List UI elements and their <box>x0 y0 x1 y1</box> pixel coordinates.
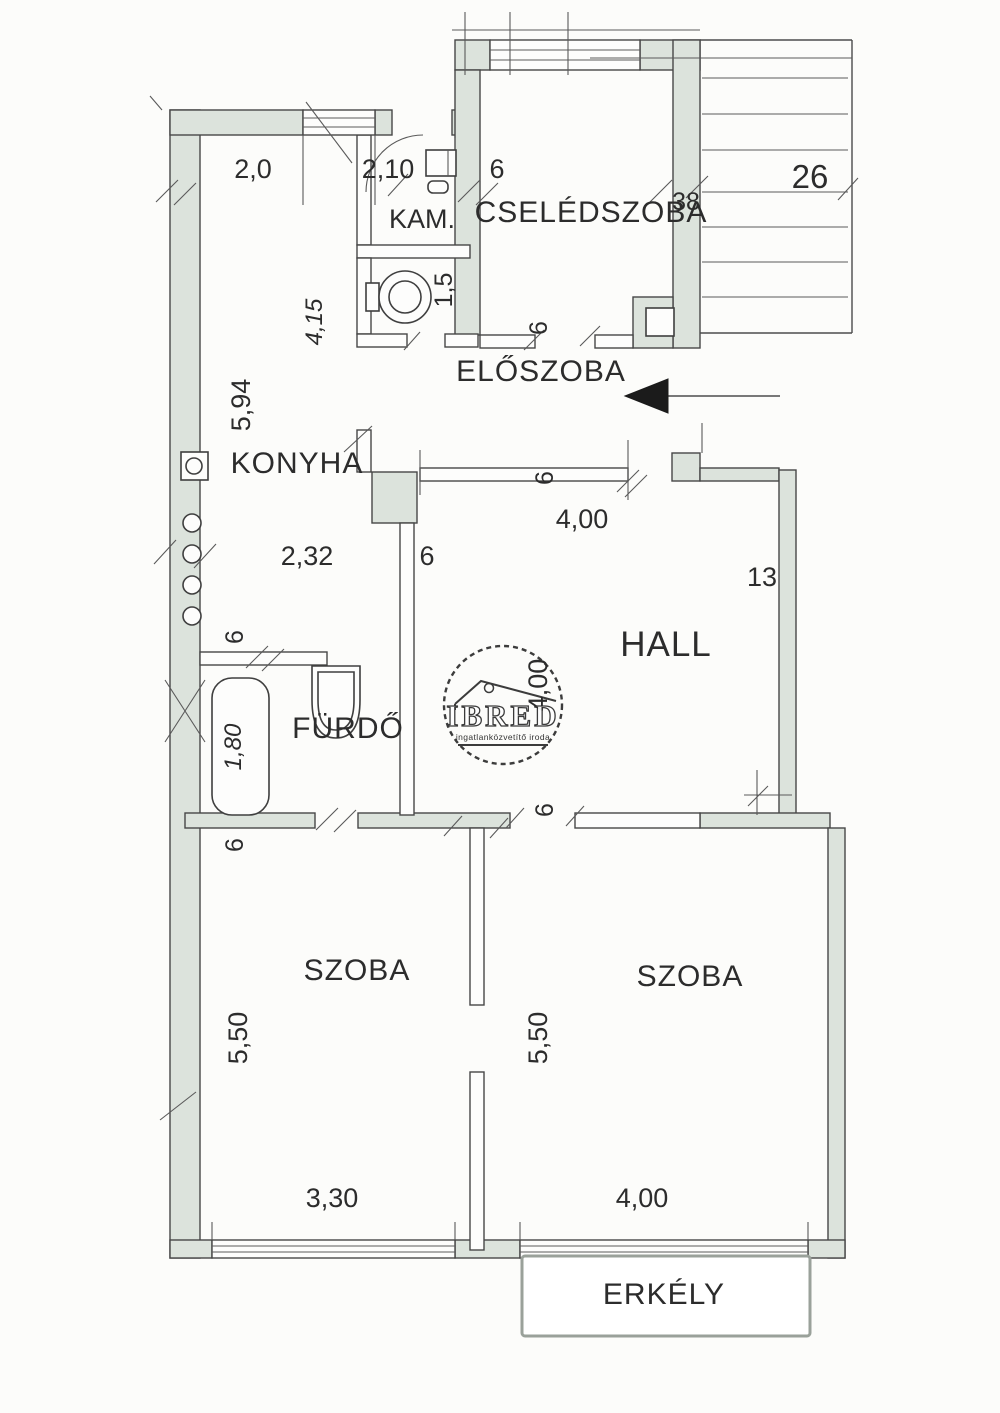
dim-4-15: 4,15 <box>301 298 328 345</box>
room-labels: KAM. CSELÉDSZOBA ELŐSZOBA KONYHA HALL FÜ… <box>231 196 744 1311</box>
room-label-kam: KAM. <box>389 204 455 234</box>
window-szoba-left-bottom <box>212 1240 455 1258</box>
floor-plan-drawing: KAM. CSELÉDSZOBA ELŐSZOBA KONYHA HALL FÜ… <box>0 0 1000 1413</box>
dim-1-80: 1,80 <box>220 723 247 770</box>
dim-6-konyha-wall: 6 <box>419 541 434 571</box>
window-cseledszoba-top <box>490 40 640 70</box>
dim-4-00-eloszoba: 4,00 <box>556 504 609 534</box>
entrance-arrow-icon <box>625 379 780 413</box>
room-label-hall: HALL <box>620 625 712 664</box>
dim-4-00-szoba: 4,00 <box>616 1183 669 1213</box>
room-label-erkely: ERKÉLY <box>603 1278 725 1311</box>
wc-toilet-icon <box>366 271 431 323</box>
dim-38: 38 <box>672 188 700 216</box>
dim-6-hall-top: 6 <box>531 471 559 485</box>
room-label-szoba-left: SZOBA <box>304 954 411 987</box>
dim-5-50-left: 5,50 <box>223 1012 253 1065</box>
dim-6-top: 6 <box>489 154 504 184</box>
dim-5-94: 5,94 <box>226 379 256 432</box>
dim-2-0: 2,0 <box>234 154 272 184</box>
dim-6-cseled-door: 6 <box>525 321 553 335</box>
kitchen-sink-icon <box>181 452 208 480</box>
window-konyha-top <box>303 110 375 135</box>
dim-6-hall-bottom: 6 <box>531 803 559 817</box>
watermark-tagline: ingatlanközvetítő iroda <box>456 732 550 742</box>
dim-6-szoba-top: 6 <box>221 838 249 852</box>
watermark-brand: IBRED <box>446 698 559 733</box>
dim-3-30: 3,30 <box>306 1183 359 1213</box>
shaft-box <box>646 308 674 336</box>
dim-1-5: 1,5 <box>430 273 458 308</box>
room-label-szoba-right: SZOBA <box>637 960 744 993</box>
dim-6-furdo-top: 6 <box>221 630 249 644</box>
dim-5-50-right: 5,50 <box>523 1012 553 1065</box>
floor-plan-page: KAM. CSELÉDSZOBA ELŐSZOBA KONYHA HALL FÜ… <box>0 0 1000 1413</box>
room-label-eloszoba: ELŐSZOBA <box>456 355 626 388</box>
room-label-konyha: KONYHA <box>231 447 364 480</box>
dim-26: 26 <box>792 158 829 195</box>
room-label-furdo: FÜRDŐ <box>292 712 404 745</box>
dim-13: 13 <box>747 562 777 592</box>
kam-appliance-icon <box>426 150 456 193</box>
dim-2-10: 2,10 <box>362 154 415 184</box>
dim-2-32: 2,32 <box>281 541 334 571</box>
